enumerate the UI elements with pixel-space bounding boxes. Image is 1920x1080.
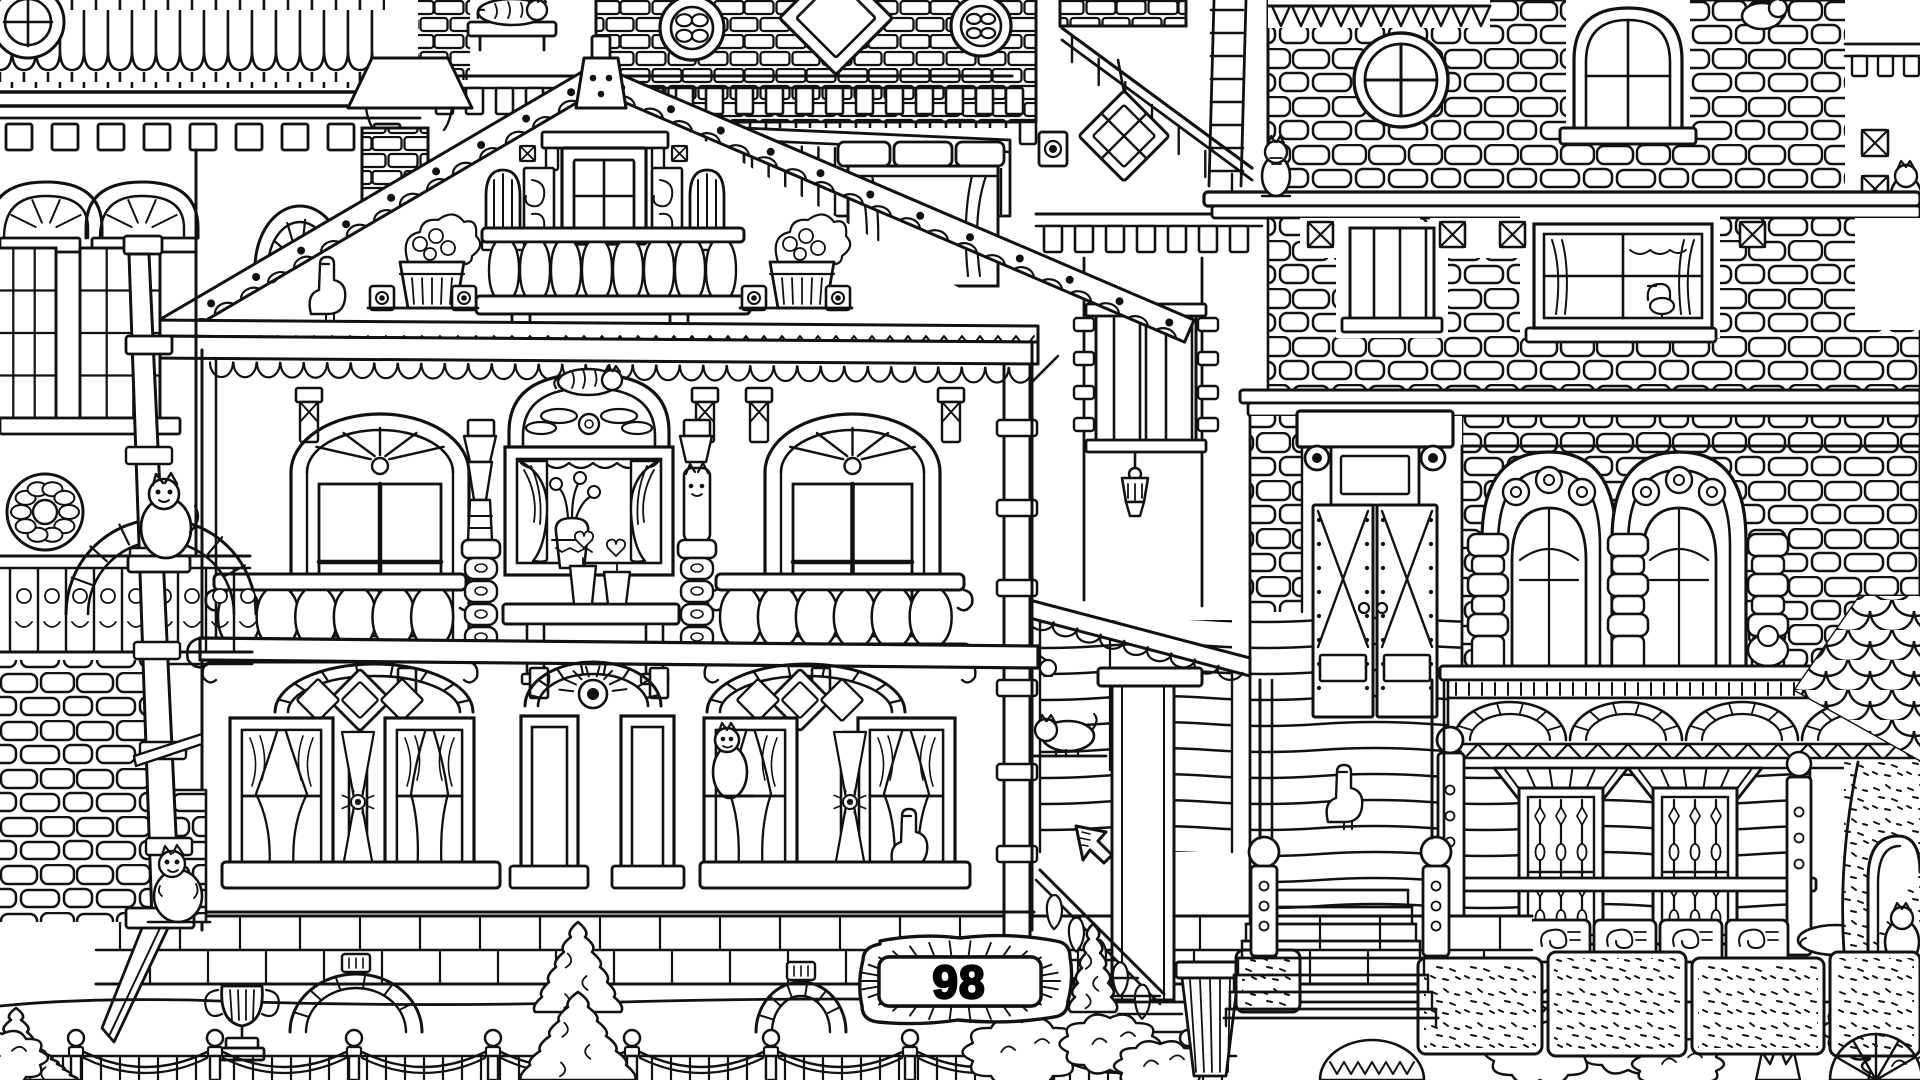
svg-text:98: 98 [932,956,985,1008]
